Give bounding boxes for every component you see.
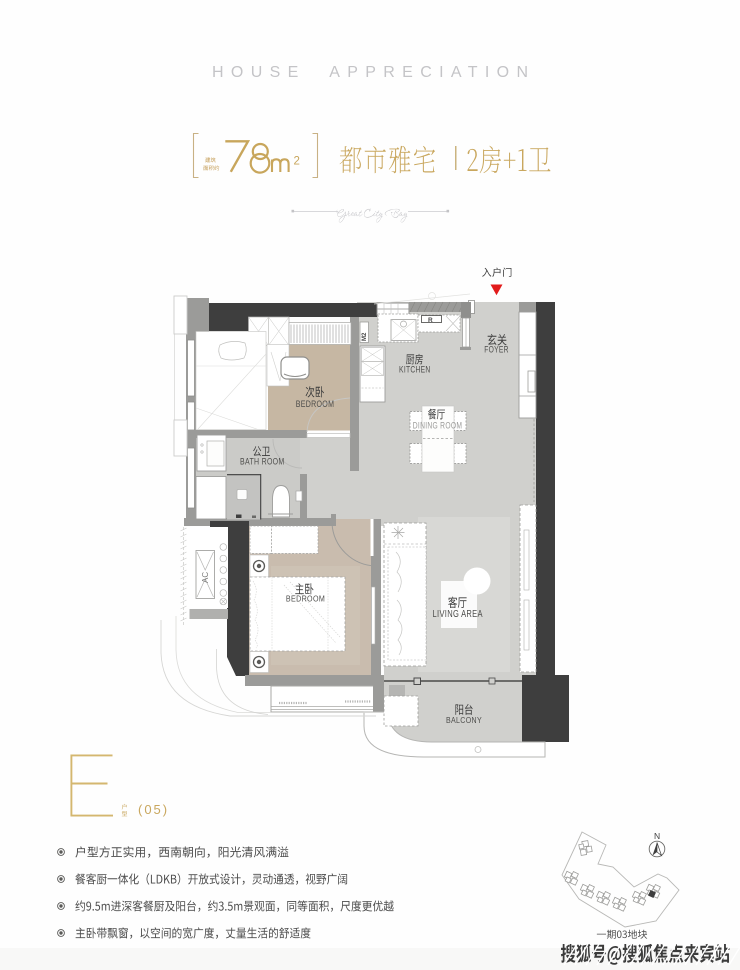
svg-text:BATH ROOM: BATH ROOM	[240, 455, 284, 466]
svg-text:2: 2	[294, 156, 300, 168]
svg-text:LIVING AREA: LIVING AREA	[433, 608, 483, 619]
svg-text:BEDROOM: BEDROOM	[296, 398, 334, 409]
svg-text:KITCHEN: KITCHEN	[399, 364, 431, 374]
svg-text:(05): (05)	[138, 802, 169, 817]
svg-text:BEDROOM: BEDROOM	[286, 594, 325, 604]
svg-text:M2: M2	[362, 332, 368, 341]
svg-text:DINING ROOM: DINING ROOM	[413, 421, 462, 431]
svg-text:R: R	[428, 317, 433, 324]
svg-text:FOYER: FOYER	[484, 344, 508, 354]
svg-text:N: N	[654, 831, 660, 841]
svg-text:BALCONY: BALCONY	[446, 715, 482, 725]
svg-text:AC: AC	[201, 572, 210, 583]
